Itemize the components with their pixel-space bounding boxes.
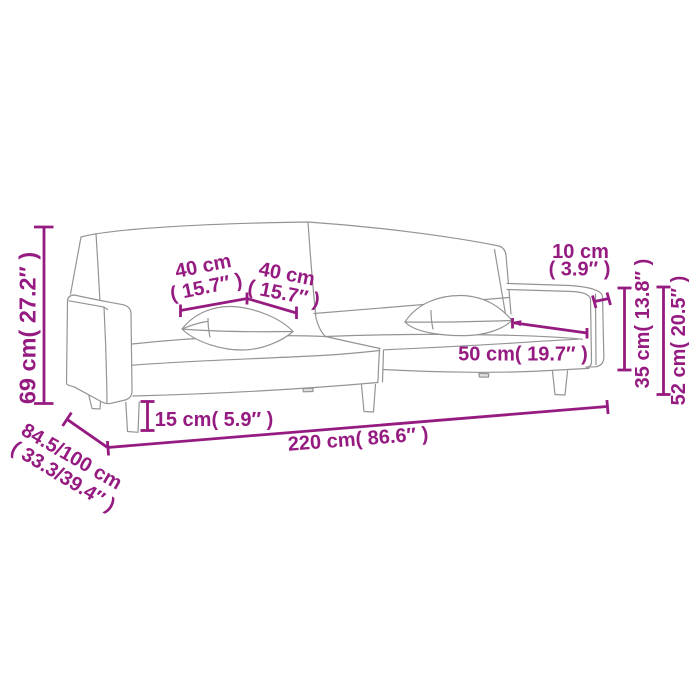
svg-text:52 cm( 20.5″ ): 52 cm( 20.5″ ): [668, 276, 690, 406]
svg-text:15 cm( 5.9″ ): 15 cm( 5.9″ ): [155, 409, 274, 431]
svg-text:35 cm( 13.8″ ): 35 cm( 13.8″ ): [632, 259, 654, 389]
svg-text:69 cm( 27.2″ ): 69 cm( 27.2″ ): [15, 252, 41, 404]
svg-text:( 3.9″ ): ( 3.9″ ): [549, 259, 611, 281]
svg-text:50 cm( 19.7″ ): 50 cm( 19.7″ ): [458, 344, 588, 366]
